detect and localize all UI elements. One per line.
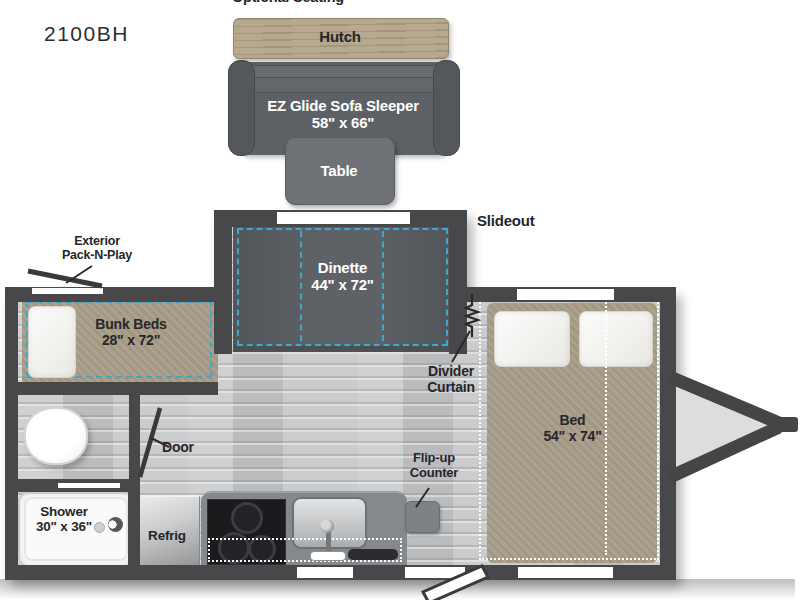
slideout-label: Slideout [477,213,567,230]
flip-up-counter [405,501,440,533]
sofa-back-cushion [247,77,441,93]
floorplan-canvas: 2100BH Optional Seating Hutch EZ Glide S… [0,0,800,600]
window [297,567,353,578]
hutch-label: Hutch [233,29,447,46]
bed-size: 54" x 74" [500,429,645,445]
shower-faucet [108,517,123,532]
window [518,567,613,578]
exterior-pack-n-play-label: Exterior Pack-N-Play [52,234,142,262]
dinette-name: Dinette [233,260,452,277]
counter-accessory [348,549,398,560]
pack-n-play-pointer-line [66,266,92,283]
pack-n-play-door-line [28,271,102,286]
sofa-name: EZ Glide Sofa Sleeper [240,98,446,115]
window [277,212,410,224]
sofa-label: EZ Glide Sofa Sleeper 58" x 66" [240,98,446,132]
slideout-wall-left [214,210,232,354]
model-label: 2100BH [44,22,164,46]
table-label: Table [285,163,393,180]
flip-up-counter-label: Flip-up Counter [398,451,470,480]
refrigerator-label: Refrig [136,528,198,543]
shower-size: 30" x 36" [20,519,108,534]
window [517,289,614,300]
bunk-beds-label: Bunk Beds 28" x 72" [61,317,201,348]
counter-handle [310,551,346,561]
sink-faucet-head [320,519,334,533]
hitch-frame-fill [676,385,768,467]
hitch-bar-top [670,377,779,423]
stove-burner [231,502,263,534]
bed-name: Bed [500,413,645,429]
hitch-coupler [776,417,798,432]
dinette-front-edge [233,345,452,352]
optional-seating-label: Optional Seating [228,0,348,5]
divider-line1: Divider [415,364,487,380]
bed-label: Bed 54" x 74" [500,413,645,444]
wall-shower-right [128,479,140,571]
bunk-size: 28" x 72" [61,333,201,349]
dinette-label: Dinette 44" x 72" [233,260,452,294]
wall-bunk-bottom [18,382,218,395]
wall-left [5,287,18,580]
bunk-name: Bunk Beds [61,317,201,333]
wall-right [660,287,676,580]
ground-shadow [0,579,795,600]
flipup-line2: Counter [398,466,470,481]
shower-label: Shower 30" x 36" [20,504,108,534]
pack-n-play-opening [32,288,103,294]
hitch-bar-bottom [670,427,779,477]
exterior-line2: Pack-N-Play [52,248,142,262]
exterior-line1: Exterior [52,234,142,248]
toilet [24,407,88,465]
window [405,567,465,578]
wall-bathroom-vertical [129,382,140,486]
door-label: Door [162,440,222,456]
shower-name: Shower [20,504,108,519]
flipup-line1: Flip-up [398,451,470,466]
sofa-size: 58" x 66" [240,115,446,132]
dinette-size: 44" x 72" [233,277,452,294]
shower-door-glass [58,483,120,488]
divider-line2: Curtain [415,380,487,396]
divider-curtain-label: Divider Curtain [415,364,487,395]
